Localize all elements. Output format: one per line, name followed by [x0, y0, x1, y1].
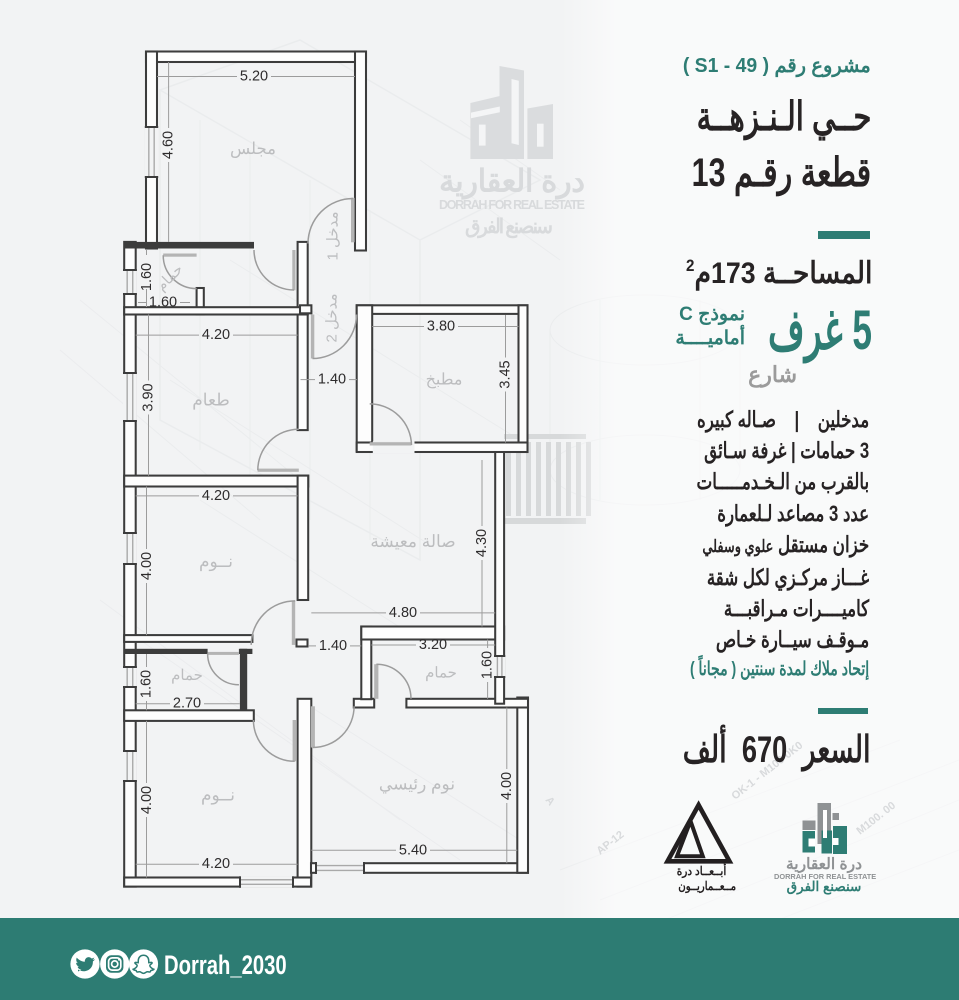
svg-text:4.00: 4.00: [139, 552, 155, 580]
svg-text:درة العقارية: درة العقارية: [439, 164, 585, 201]
svg-text:4.60: 4.60: [161, 131, 177, 159]
svg-text:1.60: 1.60: [149, 295, 177, 311]
svg-text:A: A: [543, 794, 557, 808]
svg-text:4.80: 4.80: [389, 605, 417, 621]
svg-text:4.20: 4.20: [202, 327, 230, 343]
svg-text:1.40: 1.40: [319, 638, 347, 654]
svg-text:حمام: حمام: [153, 261, 186, 294]
svg-text:4.20: 4.20: [202, 488, 230, 504]
svg-text:4.00: 4.00: [139, 786, 155, 814]
svg-text:4.00: 4.00: [499, 772, 515, 800]
svg-text:3.20: 3.20: [419, 637, 447, 653]
svg-text:3.90: 3.90: [141, 383, 157, 411]
svg-text:3.80: 3.80: [427, 319, 455, 335]
svg-text:4.20: 4.20: [202, 856, 230, 872]
svg-text:1.60: 1.60: [480, 651, 496, 679]
svg-text:1.60: 1.60: [139, 670, 155, 698]
svg-text:حمام: حمام: [171, 667, 203, 684]
svg-text:2.70: 2.70: [173, 696, 201, 712]
svg-text:طعام: طعام: [192, 391, 229, 411]
svg-text:4.30: 4.30: [474, 529, 490, 557]
svg-text:مطبخ: مطبخ: [426, 372, 463, 389]
svg-text:DORRAH FOR REAL ESTATE: DORRAH FOR REAL ESTATE: [439, 198, 585, 212]
svg-text:نــوم: نــوم: [201, 786, 235, 806]
svg-text:1.40: 1.40: [318, 372, 346, 388]
svg-text:مدخل 2: مدخل 2: [324, 293, 341, 342]
svg-text:مجلس: مجلس: [230, 140, 276, 159]
svg-text:نوم رئيسي: نوم رئيسي: [379, 775, 455, 795]
svg-text:5.20: 5.20: [240, 69, 268, 85]
svg-text:صالة معيشة: صالة معيشة: [370, 532, 455, 551]
svg-text:1.60: 1.60: [139, 263, 155, 291]
svg-text:3.45: 3.45: [498, 360, 514, 388]
svg-text:نــوم: نــوم: [199, 552, 233, 572]
svg-text:سنصنع الفرق: سنصنع الفرق: [465, 216, 553, 239]
svg-text:حمام: حمام: [425, 665, 457, 682]
svg-text:مدخل 1: مدخل 1: [325, 211, 342, 260]
svg-text:5.40: 5.40: [399, 842, 427, 858]
